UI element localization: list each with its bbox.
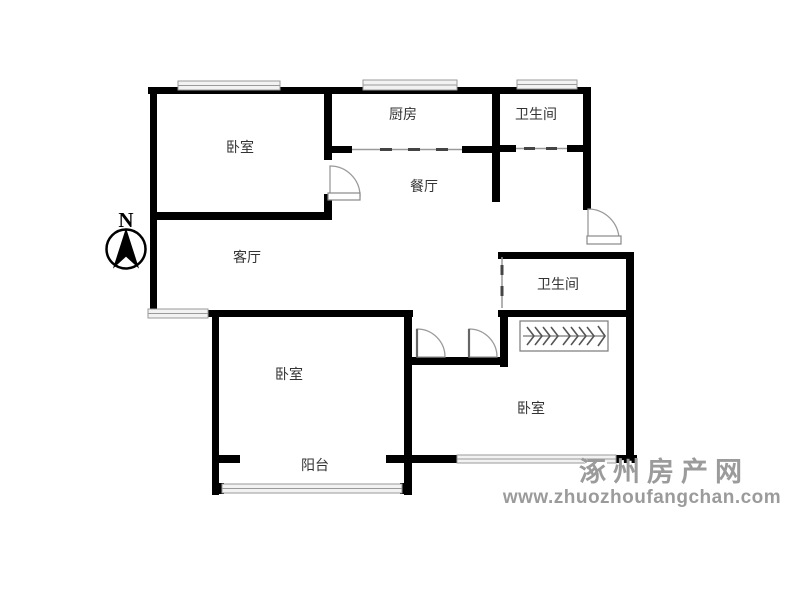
door-swing-icon (328, 166, 360, 200)
watermark-site-url: www.zhuozhoufangchan.com (502, 487, 781, 508)
wall-segment (212, 310, 219, 495)
room-label-dining: 餐厅 (410, 178, 438, 194)
window (148, 309, 208, 318)
floor-plan-page: N 卧室 厨房 卫生间 餐厅 客厅 卫生间 卧室 阳台 卧室 涿州房产网 涿州房… (0, 0, 800, 600)
wall-segment (498, 310, 633, 317)
door-swing-icon (469, 329, 497, 357)
room-label-bathroom-n: 卫生间 (515, 106, 557, 122)
room-label-bedroom-nw: 卧室 (226, 139, 254, 155)
wall-segment (492, 87, 500, 202)
window (222, 484, 402, 493)
wall-segment (498, 252, 633, 259)
wall-segment (150, 212, 332, 220)
room-label-bathroom-e: 卫生间 (537, 276, 579, 292)
wall-segment (332, 146, 352, 153)
wall-segment (404, 357, 508, 365)
room-label-bedroom-se: 卧室 (517, 400, 545, 416)
wall-segment (583, 87, 591, 210)
floor-plan-drawing: N 卧室 厨房 卫生间 餐厅 客厅 卫生间 卧室 阳台 卧室 涿州房产网 涿州房… (0, 0, 800, 600)
wall-segment (205, 310, 413, 317)
wall-segment (404, 310, 412, 495)
wall-segment (150, 87, 157, 309)
window (363, 80, 457, 90)
room-labels: 卧室 厨房 卫生间 餐厅 客厅 卫生间 卧室 阳台 卧室 (226, 106, 579, 473)
door-swing-icon (417, 329, 445, 357)
window (517, 80, 577, 89)
watermark-site-name: 涿州房产网 (579, 457, 749, 487)
compass-icon: N (107, 208, 146, 269)
wall-segment (386, 455, 412, 463)
wall-segment (212, 455, 240, 463)
room-label-balcony: 阳台 (301, 457, 329, 473)
window (178, 81, 280, 90)
wall-segment (500, 310, 508, 367)
door-swing-icon entry-door (587, 209, 621, 244)
wall-segment (500, 145, 516, 152)
wall-segment (626, 252, 634, 463)
wall-segment (324, 87, 332, 160)
watermark: 涿州房产网 涿州房产网 www.zhuozhoufangchan.com www… (502, 457, 783, 510)
room-label-living: 客厅 (233, 249, 261, 265)
wardrobe-hangers-icon (520, 321, 608, 351)
room-label-kitchen: 厨房 (389, 106, 417, 122)
room-label-bedroom-sw: 卧室 (275, 366, 303, 382)
sliding-doors (352, 149, 567, 309)
